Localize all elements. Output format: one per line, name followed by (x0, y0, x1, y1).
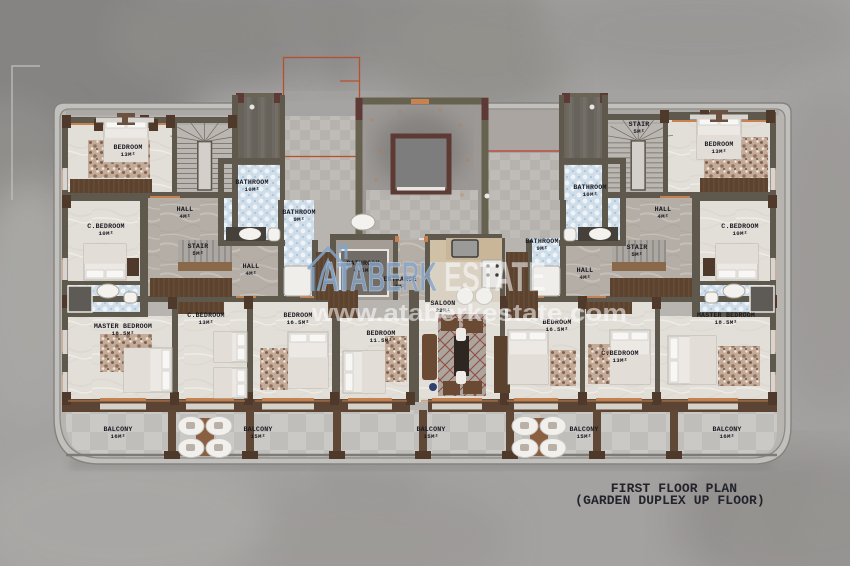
svg-text:STAIR: STAIR (188, 243, 209, 250)
svg-text:10M²: 10M² (582, 191, 597, 198)
svg-text:4M²: 4M² (579, 274, 590, 281)
svg-text:(GARDEN DUPLEX UP FLOOR): (GARDEN DUPLEX UP FLOOR) (575, 493, 765, 508)
svg-text:16.5M²: 16.5M² (287, 319, 310, 326)
svg-text:BATHROOM: BATHROOM (525, 238, 558, 245)
svg-text:13M²: 13M² (198, 319, 213, 326)
svg-text:C.BEDROOM: C.BEDROOM (87, 223, 124, 230)
svg-text:15M²: 15M² (250, 433, 265, 440)
svg-text:13M²: 13M² (711, 148, 726, 155)
svg-text:BEDROOM: BEDROOM (366, 330, 395, 337)
svg-text:10M²: 10M² (98, 230, 113, 237)
svg-text:15M²: 15M² (423, 433, 438, 440)
svg-text:BATHROOM: BATHROOM (282, 209, 315, 216)
svg-text:16.5M²: 16.5M² (546, 326, 569, 333)
svg-text:11.5M²: 11.5M² (370, 337, 393, 344)
svg-text:5M²: 5M² (192, 250, 203, 257)
svg-text:10M²: 10M² (732, 230, 747, 237)
svg-text:HALL: HALL (655, 206, 672, 213)
svg-text:5M²: 5M² (631, 251, 642, 258)
svg-text:HALL: HALL (177, 206, 194, 213)
svg-text:BALCONY: BALCONY (103, 426, 132, 433)
svg-text:HALL: HALL (577, 267, 594, 274)
svg-text:BATHROOM: BATHROOM (235, 179, 268, 186)
svg-text:BALCONY: BALCONY (712, 426, 741, 433)
svg-text:18.5M²: 18.5M² (112, 330, 135, 337)
svg-text:5M²: 5M² (633, 128, 644, 135)
svg-text:16M²: 16M² (719, 433, 734, 440)
svg-text:www.ataberkestate.com: www.ataberkestate.com (311, 300, 627, 327)
svg-text:16M²: 16M² (110, 433, 125, 440)
svg-text:BALCONY: BALCONY (416, 426, 445, 433)
svg-text:MASTER BEDROOM: MASTER BEDROOM (94, 323, 152, 330)
svg-text:BEDROOM: BEDROOM (704, 141, 733, 148)
svg-text:BALCONY: BALCONY (243, 426, 272, 433)
svg-text:C.BEDROOM: C.BEDROOM (187, 312, 224, 319)
svg-text:BEDROOM: BEDROOM (113, 144, 142, 151)
svg-text:4M²: 4M² (657, 213, 668, 220)
svg-text:18.5M²: 18.5M² (715, 319, 738, 326)
svg-text:C.BEDROOM: C.BEDROOM (601, 350, 638, 357)
svg-text:4M²: 4M² (179, 213, 190, 220)
svg-text:STAIR: STAIR (627, 244, 648, 251)
svg-text:BALCONY: BALCONY (569, 426, 598, 433)
svg-text:STAIR: STAIR (629, 121, 650, 128)
svg-text:9M²: 9M² (293, 216, 304, 223)
svg-text:ATABERK: ATABERK (321, 253, 437, 300)
svg-text:15M²: 15M² (576, 433, 591, 440)
svg-text:C.BEDROOM: C.BEDROOM (721, 223, 758, 230)
svg-text:13M²: 13M² (120, 151, 135, 158)
svg-text:4M²: 4M² (245, 270, 256, 277)
svg-text:10M²: 10M² (244, 186, 259, 193)
svg-text:BEDROOM: BEDROOM (283, 312, 312, 319)
svg-text:BATHROOM: BATHROOM (573, 184, 606, 191)
svg-text:MASTER BEDROOM: MASTER BEDROOM (697, 312, 755, 319)
svg-text:HALL: HALL (243, 263, 260, 270)
svg-text:13M²: 13M² (612, 357, 627, 364)
svg-text:9M²: 9M² (536, 245, 547, 252)
svg-text:ESTATE: ESTATE (444, 253, 546, 300)
